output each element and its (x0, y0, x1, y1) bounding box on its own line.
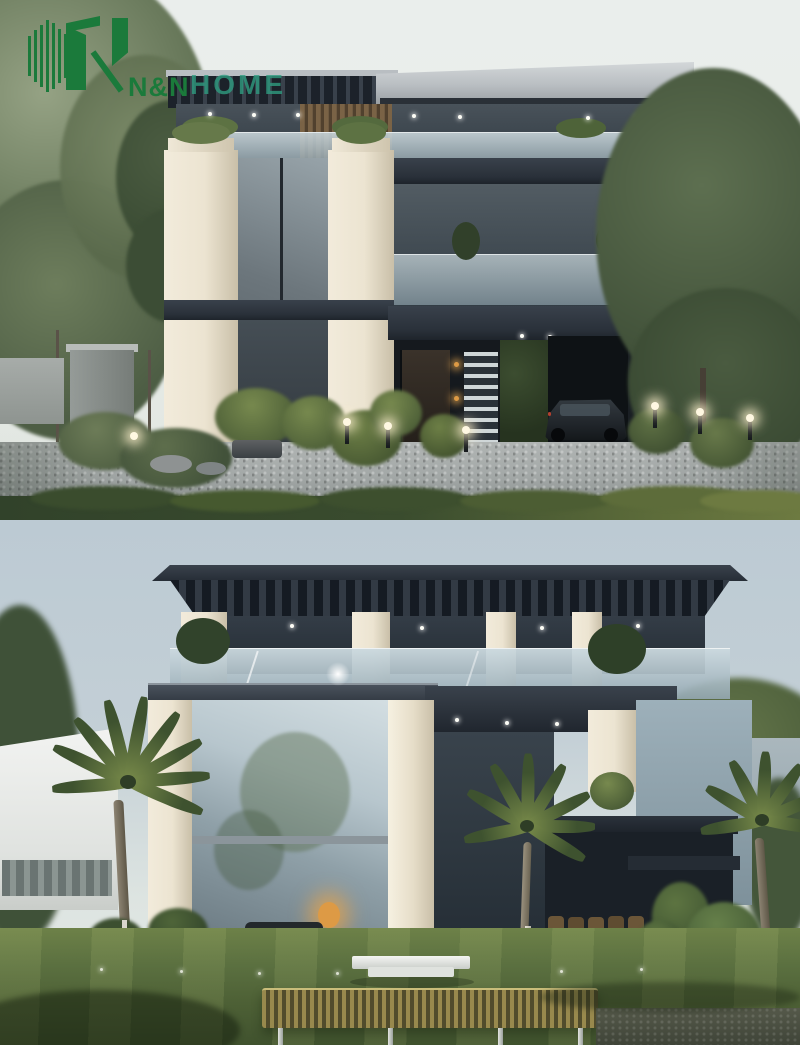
roof-downlight (208, 112, 212, 116)
glass-tree-reflection (214, 810, 284, 890)
garden-rock (150, 455, 192, 473)
logo-bar (52, 23, 55, 89)
lawn-marker-light (100, 968, 103, 971)
lawn-marker-light (258, 972, 261, 975)
suv-rear-window (560, 404, 610, 416)
green-living-wall (500, 340, 548, 452)
water-feature-base-slab (368, 967, 454, 977)
bollard-light-post (386, 428, 390, 448)
bollard-light-glow (130, 432, 138, 440)
suv-wheel (604, 428, 618, 442)
foreground-shadow-right (540, 982, 800, 1012)
roof-downlight (296, 113, 300, 117)
boundary-wall (0, 358, 64, 424)
suv-taillight (548, 412, 551, 416)
bollard-light-glow (343, 418, 351, 426)
floor-slab-left (164, 300, 394, 320)
logo-bar (28, 36, 31, 76)
entry-wall-lamp (454, 362, 459, 367)
bollard-light-post (653, 408, 657, 428)
bench-leg (578, 1028, 583, 1045)
street-view-rendering: N&N HOME (0, 0, 800, 520)
lawn-marker-light (336, 972, 339, 975)
bollard-light-glow (651, 402, 659, 410)
logo-bar (40, 25, 43, 87)
architecture-rendering-collage: N&N HOME (0, 0, 800, 1045)
soffit-downlight (455, 718, 459, 722)
balcony-potted-plant (452, 222, 480, 260)
lawn-marker-light (180, 970, 183, 973)
balcony-planter-palm (588, 624, 646, 674)
palm-crown-core (120, 775, 136, 789)
bollard-light-glow (384, 422, 392, 430)
watermark-logo: N&N HOME (20, 8, 300, 112)
roof-downlight (412, 114, 416, 118)
pergola-slat-band (170, 580, 730, 620)
planter-greenery (336, 122, 386, 144)
bollard-light-glow (462, 426, 470, 434)
terrace-lower-canopy (628, 856, 740, 870)
balcony-planter-palm (176, 618, 230, 664)
pergola-downlight (420, 626, 424, 630)
bench-leg (388, 1028, 393, 1045)
hedge-tuft (320, 487, 470, 511)
bollard-light-post (748, 420, 752, 440)
sun-glint (326, 662, 350, 686)
roof-downlight (458, 115, 462, 119)
bollard-light-post (698, 414, 702, 434)
bollard-light-post (464, 432, 468, 452)
logo-bar (46, 20, 49, 92)
entry-wall-lamp (454, 396, 459, 401)
bench-leg (278, 1028, 283, 1045)
ledge-shrub-ball (590, 772, 634, 810)
hedge-tuft (170, 490, 320, 512)
soffit-downlight (555, 722, 559, 726)
suv-wheel (551, 428, 565, 442)
third-floor-glass-balustrade (176, 132, 684, 161)
logo-bar (58, 29, 61, 83)
lawn-marker-light (640, 968, 643, 971)
hedge-tuft (460, 490, 610, 512)
balcony-planter-greenery (556, 118, 606, 138)
pergola-downlight (540, 626, 544, 630)
round-bush (370, 390, 422, 436)
bollard-light-post (345, 424, 349, 444)
hedge-tuft (30, 486, 180, 510)
soffit-downlight (505, 721, 509, 725)
foreground-gravel-right (596, 1008, 800, 1045)
roof-downlight (252, 113, 256, 117)
water-feature-shadow (350, 976, 474, 988)
garden-view-rendering (0, 520, 800, 1045)
bollard-light-glow (696, 408, 704, 416)
logo-bar (34, 30, 37, 82)
planter-greenery (172, 122, 230, 144)
bench-leg (498, 1028, 503, 1045)
foreground-stone-column (388, 700, 434, 966)
palm-crown-core (520, 820, 534, 832)
logo-text-home: HOME (190, 69, 286, 101)
pergola-roof-slab (152, 565, 748, 581)
round-bush (420, 414, 468, 458)
pergola-downlight (290, 624, 294, 628)
garden-rock (196, 462, 226, 475)
canopy-downlight (520, 334, 524, 338)
lawn-marker-light (560, 970, 563, 973)
pergola-downlight (636, 624, 640, 628)
roof-downlight (586, 116, 590, 120)
logo-n-monogram-stem-right (112, 18, 128, 66)
logo-text-nn: N&N (128, 72, 190, 103)
bollard-light-glow (746, 414, 754, 422)
glass-transom-mullion (192, 836, 388, 844)
neighbor-house-louvers (2, 860, 112, 896)
palm-crown-core (755, 814, 769, 826)
bonsai-pot (232, 440, 282, 458)
logo-n-monogram-stem-left (66, 26, 86, 90)
round-bush (628, 408, 686, 454)
